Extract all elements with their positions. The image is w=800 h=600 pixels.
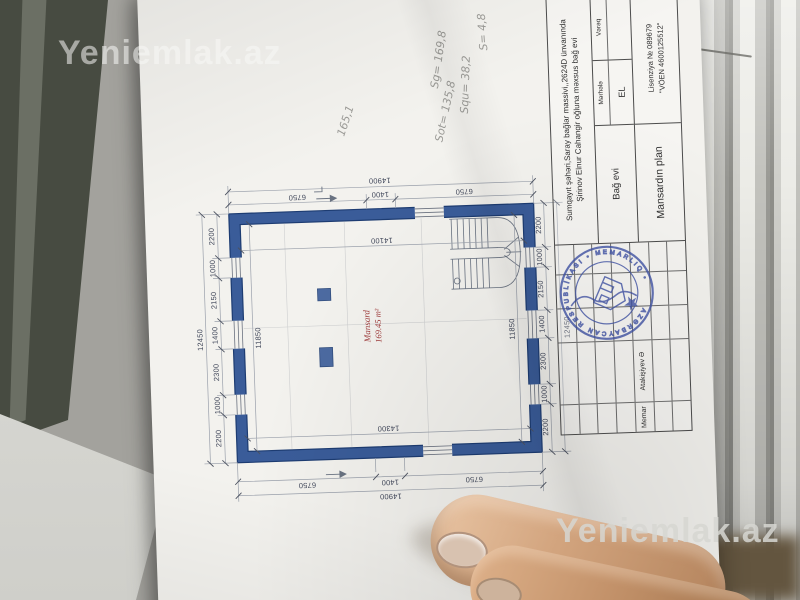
dim-top-overall: 14900 <box>369 176 391 186</box>
room-name: Mansard <box>360 309 373 344</box>
drawing-title: Mansardın plan <box>635 122 685 242</box>
sheet-cell: Vərəq <box>590 0 631 60</box>
dim-bottom-inner: 14300 <box>377 424 399 434</box>
svg-text:AZƏRBAYCAN RESPUBLİKASI • MEMA: AZƏRBAYCAN RESPUBLİKASI • MEMARLIQ • <box>551 237 663 349</box>
title-block: Memar Atakişiyev Ə Sumqayıt şəhəri,Saray… <box>545 0 692 435</box>
title-info: Sumqayıt şəhəri,Saray bağlar massivi,,26… <box>546 0 685 245</box>
handwritten-note: S= 4,8 <box>475 13 491 51</box>
dim-left-overall: 12450 <box>195 329 205 351</box>
dim-right-seg: 1000 <box>539 385 549 403</box>
dim-left-seg: 1000 <box>213 397 223 415</box>
voen-number: "VÖEN 4600125512" <box>654 22 668 93</box>
vent-shafts <box>317 288 333 366</box>
blueprint-paper: 14900 6750 1400 6750 14100 6750 1400 675… <box>137 0 721 600</box>
handwritten-note: Squ= 38,2 <box>458 55 473 114</box>
signature-role: Memar <box>635 401 654 432</box>
dim-bottom-seg: 1400 <box>381 478 399 488</box>
axis-lines <box>240 215 531 452</box>
staircase <box>449 217 522 289</box>
stage-cell: Mərhələ EL <box>593 59 634 125</box>
dim-bottom-seg: 6750 <box>465 475 483 485</box>
dim-left-seg: 1400 <box>210 327 220 345</box>
leader-arrows <box>314 186 346 478</box>
dim-right-inner: 11850 <box>507 318 517 340</box>
dim-right-seg: 2200 <box>541 418 551 436</box>
dim-left-seg: 2200 <box>214 430 224 448</box>
room-label: Mansard 169.45 m² <box>360 308 385 343</box>
dim-right-seg: 2150 <box>536 280 546 298</box>
dim-top-seg: 6750 <box>288 193 306 203</box>
dim-left-seg: 1000 <box>208 260 218 278</box>
stage-value: EL <box>609 60 634 125</box>
dim-bottom-overall: 14900 <box>380 492 402 502</box>
dim-right-seg: 1000 <box>535 248 545 266</box>
dim-left-seg: 2150 <box>209 292 219 310</box>
room-area: 169.45 m² <box>373 308 386 343</box>
dim-left-seg: 2300 <box>211 364 221 382</box>
dim-top-seg: 1400 <box>371 190 389 200</box>
round-seal-stamp-icon: AZƏRBAYCAN RESPUBLİKASI • MEMARLIQ • <box>551 237 663 349</box>
dim-left-seg: 2200 <box>207 228 217 246</box>
sheet-value <box>606 0 631 60</box>
signature-name: Atakişiyev Ə <box>633 339 653 402</box>
object-name: Bağ evi <box>595 124 638 243</box>
dim-top-seg: 6750 <box>455 187 473 197</box>
dim-right-seg: 2200 <box>534 216 544 234</box>
dim-right-seg: 1400 <box>537 315 547 333</box>
dim-left-inner: 11850 <box>253 327 263 349</box>
dim-right-seg: 2300 <box>538 352 548 370</box>
photo-of-floor-plan-document: 14900 6750 1400 6750 14100 6750 1400 675… <box>0 0 800 600</box>
dim-top-inner: 14100 <box>371 236 393 246</box>
dim-bottom-seg: 6750 <box>298 481 316 491</box>
license-info: Lisenziya № 089679 "VÖEN 4600125512" <box>630 0 681 124</box>
